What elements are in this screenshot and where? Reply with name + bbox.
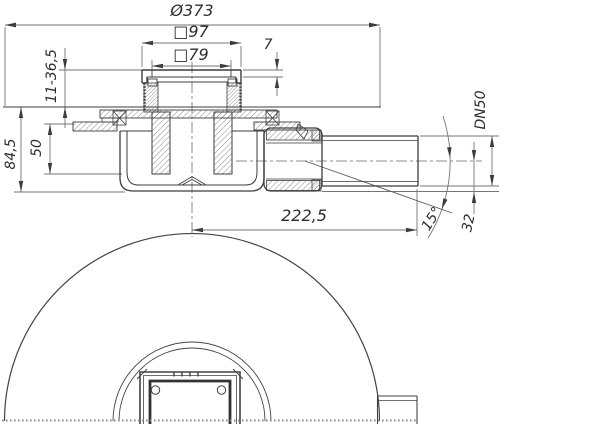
outlet-socket (264, 128, 322, 191)
flange-circle (5, 234, 380, 421)
dim-label-height-adjust: 11-36,5 (45, 49, 59, 103)
dim-label-frame-outer: □97 (173, 24, 208, 40)
dim-label-flange-diameter: Ø373 (170, 3, 213, 19)
plan-view (2, 234, 418, 424)
adjustable-collar (144, 83, 241, 112)
clamping-flange (100, 110, 277, 118)
dim-label-outlet-length: 222,5 (281, 208, 327, 224)
dim-label-grate-inner: □79 (173, 47, 208, 63)
body-circle-inner (119, 348, 265, 421)
technical-drawing-canvas: Ø373 □97 □79 7 11-36,5 84,5 50 DN50 222,… (0, 0, 600, 424)
press-flange-left (73, 118, 118, 131)
grate-support-ring (148, 79, 237, 86)
grate-frame-plan (137, 369, 243, 424)
dim-label-installation-depth: 84,5 (4, 138, 18, 169)
dim-label-outlet-size: DN50 (474, 90, 488, 129)
dimension-lines (5, 25, 499, 238)
dim-label-cover-thickness: 7 (264, 38, 273, 52)
dim-label-axis-to-base: 32 (460, 213, 477, 233)
grate-screw-right (217, 386, 225, 394)
grate-screw-left (151, 386, 159, 394)
dim-label-seal-depth: 50 (30, 139, 44, 157)
